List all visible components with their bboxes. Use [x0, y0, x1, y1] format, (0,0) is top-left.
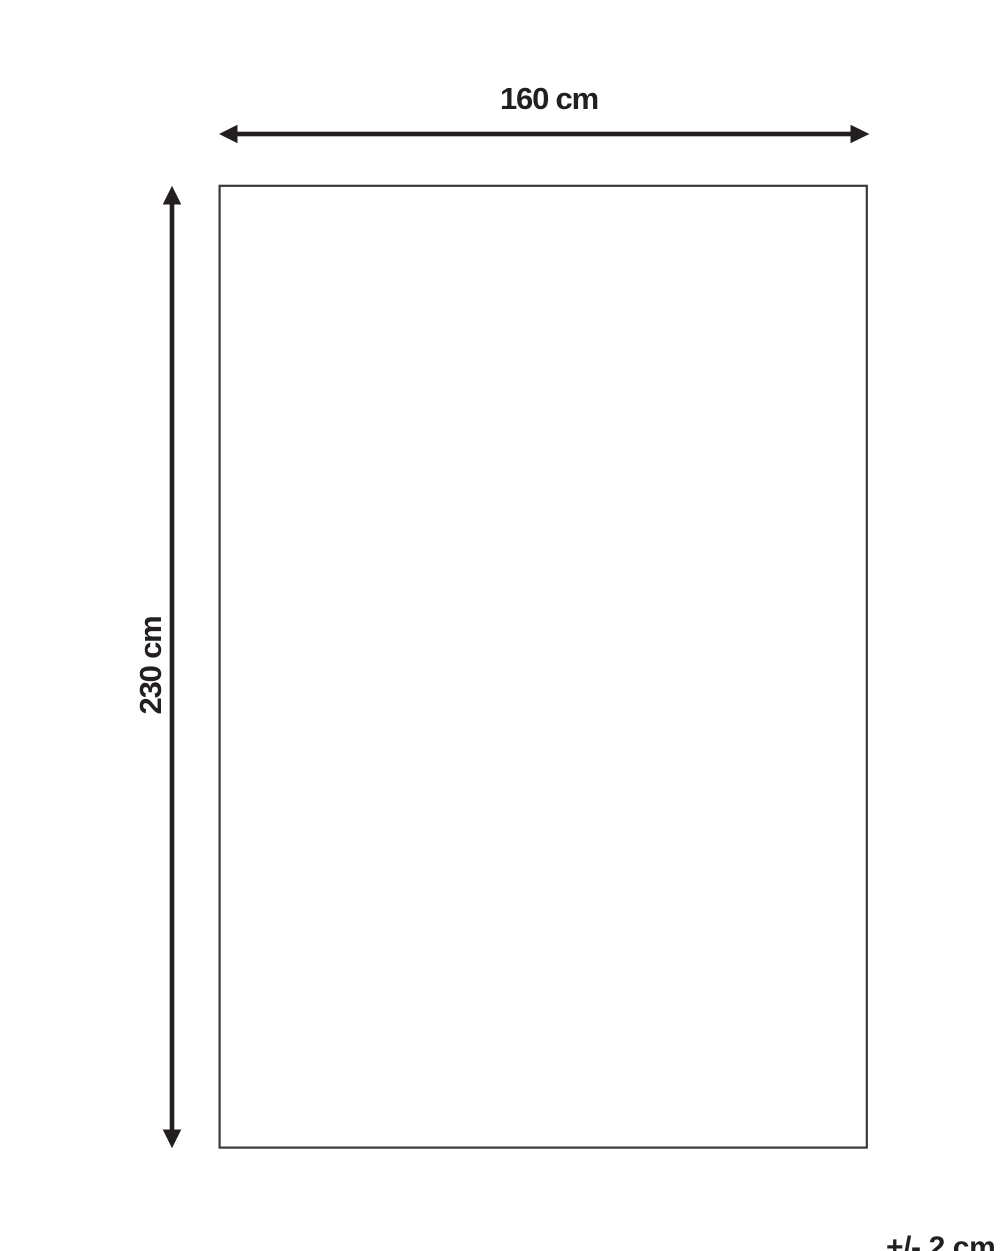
svg-text:160 cm: 160 cm	[500, 81, 598, 116]
svg-text:+/- 2 cm: +/- 2 cm	[886, 1231, 995, 1251]
svg-text:230 cm: 230 cm	[133, 617, 168, 715]
